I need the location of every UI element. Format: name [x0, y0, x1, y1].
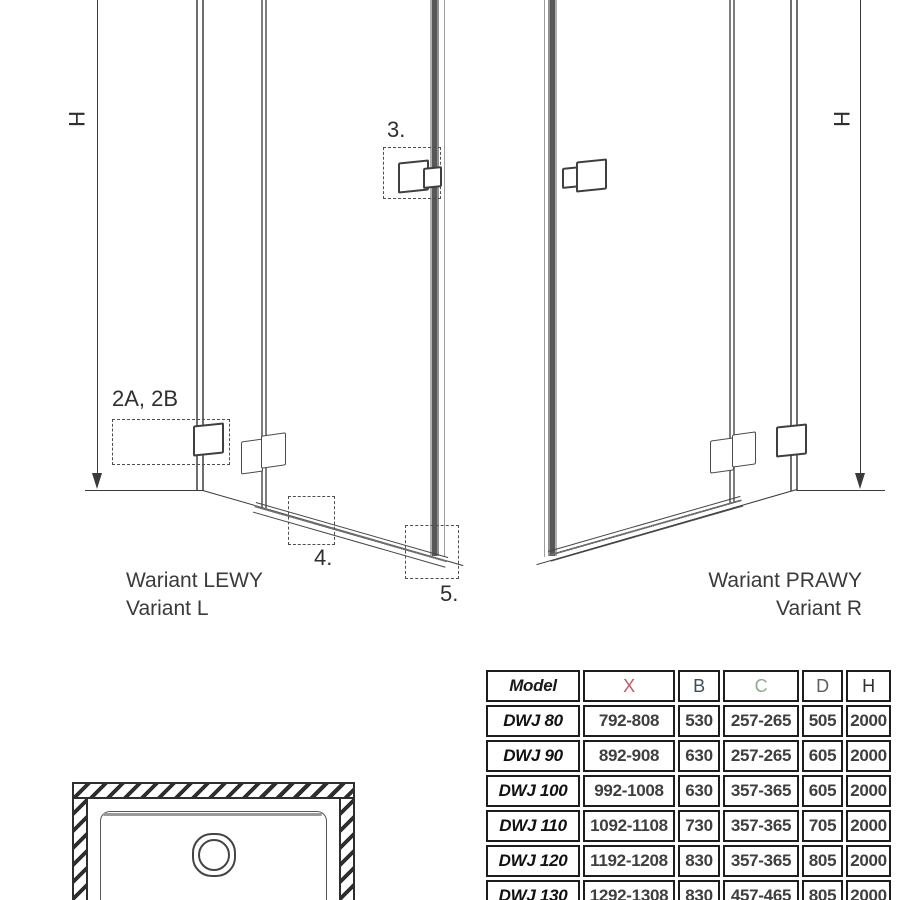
hinge-plate-front-right — [732, 431, 756, 467]
bottom-threshold-rail-right — [548, 496, 743, 562]
height-dimension-line-right — [860, 0, 861, 482]
cell-h: 2000 — [846, 810, 891, 842]
cell-c: 357-365 — [723, 845, 799, 877]
callout-label-hinges: 2A, 2B — [112, 388, 178, 410]
cell-h: 2000 — [846, 705, 891, 737]
door-handle-icon-right — [576, 158, 607, 192]
floor-line-left — [85, 490, 203, 491]
door-leading-edge-right — [548, 0, 557, 556]
wall-profile-right — [790, 0, 798, 491]
wall-profile-left — [196, 0, 204, 491]
col-header-b: B — [678, 670, 720, 702]
cell-b: 630 — [678, 740, 720, 772]
drain-inner-circle-icon — [198, 839, 230, 871]
cell-model: DWJ 110 — [486, 810, 580, 842]
cell-c: 457-465 — [723, 880, 799, 900]
col-header-h: H — [846, 670, 891, 702]
cell-h: 2000 — [846, 740, 891, 772]
callout-label-handle: 3. — [387, 119, 405, 141]
door-glass-edge-right — [544, 0, 545, 557]
cell-x: 992-1008 — [583, 775, 675, 807]
cell-x: 1192-1208 — [583, 845, 675, 877]
cell-model: DWJ 120 — [486, 845, 580, 877]
cell-c: 357-365 — [723, 810, 799, 842]
callout-box-threshold — [288, 496, 335, 545]
door-hinge-edge-right — [729, 0, 735, 503]
wall-hatch-left — [72, 799, 88, 900]
wall-hatch-right — [339, 799, 355, 900]
hinge-plate-front-left — [261, 432, 286, 469]
cell-b: 830 — [678, 845, 720, 877]
caption-variant-right-pl: Wariant PRAWY — [658, 570, 862, 591]
table-row: DWJ 130 1292-1308 830 457-465 805 2000 — [486, 880, 891, 900]
cell-d: 505 — [802, 705, 843, 737]
callout-label-bottom-guide: 5. — [440, 583, 458, 605]
cell-d: 805 — [802, 845, 843, 877]
cell-h: 2000 — [846, 845, 891, 877]
wall-hatch-top — [72, 782, 355, 799]
cell-b: 530 — [678, 705, 720, 737]
cell-x: 1292-1308 — [583, 880, 675, 900]
cell-model: DWJ 130 — [486, 880, 580, 900]
wall-bracket-icon-left — [193, 422, 224, 456]
arrow-down-icon — [92, 473, 102, 489]
height-dimension-label-right: H — [833, 108, 849, 130]
cell-model: DWJ 100 — [486, 775, 580, 807]
cell-d: 805 — [802, 880, 843, 900]
table-row: DWJ 90 892-908 630 257-265 605 2000 — [486, 740, 891, 772]
door-hinge-edge-left — [261, 0, 267, 508]
door-leading-edge-left — [430, 0, 439, 556]
shower-tray-top-view — [72, 782, 355, 900]
cell-h: 2000 — [846, 775, 891, 807]
cell-b: 630 — [678, 775, 720, 807]
cell-d: 605 — [802, 775, 843, 807]
technical-drawing-page: H 3. 2A, 2B 4. 5. Wariant LEWY Variant L — [0, 0, 900, 900]
table-row: DWJ 120 1192-1208 830 357-365 805 2000 — [486, 845, 891, 877]
cell-c: 357-365 — [723, 775, 799, 807]
spec-table-header-row: Model X B C D H — [486, 670, 891, 702]
table-row: DWJ 80 792-808 530 257-265 505 2000 — [486, 705, 891, 737]
cell-x: 1092-1108 — [583, 810, 675, 842]
floor-line-right — [797, 490, 885, 491]
caption-variant-left-en: Variant L — [126, 598, 209, 619]
spec-table: Model X B C D H DWJ 80 792-808 530 257-2… — [483, 667, 894, 900]
cell-model: DWJ 80 — [486, 705, 580, 737]
col-header-model: Model — [486, 670, 580, 702]
door-handle-mount — [423, 166, 442, 189]
door-glass-edge-left — [444, 0, 445, 557]
hinge-plate-back-right — [710, 437, 734, 473]
col-header-x: X — [583, 670, 675, 702]
height-dimension-line-left — [97, 0, 98, 482]
cell-h: 2000 — [846, 880, 891, 900]
cell-c: 257-265 — [723, 740, 799, 772]
cell-d: 705 — [802, 810, 843, 842]
tray-rim-shadow — [103, 813, 322, 816]
callout-label-threshold: 4. — [314, 547, 332, 569]
table-row: DWJ 110 1092-1108 730 357-365 705 2000 — [486, 810, 891, 842]
callout-box-bottom-guide — [405, 525, 459, 579]
table-row: DWJ 100 992-1008 630 357-365 605 2000 — [486, 775, 891, 807]
cell-x: 892-908 — [583, 740, 675, 772]
cell-d: 605 — [802, 740, 843, 772]
cell-b: 830 — [678, 880, 720, 900]
arrow-down-icon — [855, 473, 865, 489]
cell-b: 730 — [678, 810, 720, 842]
cell-model: DWJ 90 — [486, 740, 580, 772]
wall-bracket-icon-right — [776, 423, 807, 457]
caption-variant-right-en: Variant R — [658, 598, 862, 619]
height-dimension-label-left: H — [68, 108, 84, 130]
cell-c: 257-265 — [723, 705, 799, 737]
cell-x: 792-808 — [583, 705, 675, 737]
col-header-d: D — [802, 670, 843, 702]
col-header-c: C — [723, 670, 799, 702]
caption-variant-left-pl: Wariant LEWY — [126, 570, 263, 591]
hinge-plate-back-left — [241, 438, 263, 474]
